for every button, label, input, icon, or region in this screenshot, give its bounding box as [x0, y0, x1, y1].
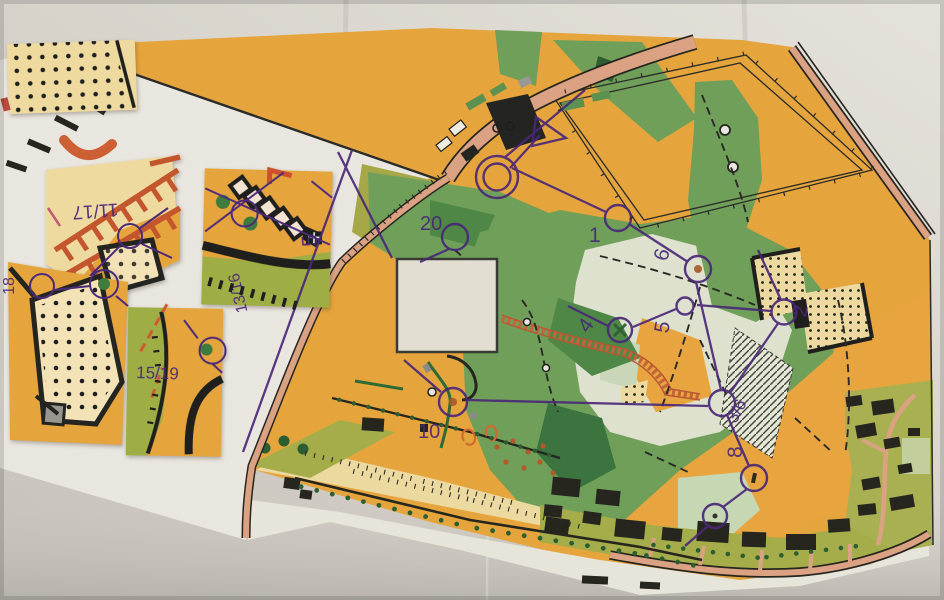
- tree-dot: [809, 549, 814, 554]
- tree-dot: [330, 492, 335, 497]
- tree-dot: [439, 423, 443, 427]
- tick: [692, 62, 693, 66]
- tick: [641, 73, 642, 77]
- wall-tag: [220, 280, 222, 289]
- tree-dot: [361, 499, 366, 504]
- tree-dot: [279, 436, 290, 447]
- blank-label-square: [397, 259, 497, 352]
- tree-dot: [651, 543, 656, 548]
- tree-dot: [779, 553, 784, 558]
- wall-tag: [294, 301, 296, 310]
- tree-dot: [547, 453, 551, 457]
- tick: [590, 84, 591, 88]
- fragment-label-5: 5: [297, 233, 323, 247]
- building: [362, 417, 385, 432]
- tree-dot: [522, 533, 527, 538]
- tree-dot: [352, 401, 356, 405]
- tree-dot: [794, 551, 799, 556]
- tree-dot: [299, 484, 304, 489]
- fragment-18: [8, 262, 128, 445]
- small-circle-symbol: [543, 365, 550, 372]
- tree-dot: [660, 556, 665, 561]
- tree-dot: [298, 444, 309, 455]
- tree-dot: [518, 444, 522, 448]
- tree-dot: [553, 538, 558, 543]
- tree-dot: [475, 432, 479, 436]
- tree-dot: [314, 488, 319, 493]
- tree-dot: [410, 416, 414, 420]
- wall-tag: [230, 283, 232, 292]
- wall-tag: [152, 395, 158, 396]
- tree-dot: [740, 554, 745, 559]
- tree-dot: [617, 548, 622, 553]
- tree-dot: [395, 412, 399, 416]
- wall-tag: [209, 277, 211, 286]
- tick: [667, 68, 668, 72]
- tree-dot: [681, 546, 686, 551]
- wall-tag: [283, 298, 285, 307]
- tree-dot: [392, 507, 397, 512]
- point-feature: [713, 514, 718, 519]
- tree-dot: [601, 546, 606, 551]
- knoll-dot: [449, 398, 457, 406]
- tree-dot: [366, 405, 370, 409]
- tree-dot: [569, 541, 574, 546]
- knoll-dot: [694, 265, 702, 273]
- wall-tag: [262, 292, 264, 301]
- tick: [565, 89, 566, 93]
- tree-dot: [644, 553, 649, 558]
- tree-dot: [424, 419, 428, 423]
- tree-dot: [408, 510, 413, 515]
- wall-tag: [155, 365, 161, 366]
- tree-dot: [474, 526, 479, 531]
- control-label-8: 8: [724, 446, 747, 458]
- tree-dot: [839, 546, 844, 551]
- tree-dot: [538, 536, 543, 541]
- wall-tag: [251, 289, 253, 298]
- tree-dot: [337, 398, 341, 402]
- tree-dot: [454, 522, 459, 527]
- tick: [616, 79, 617, 83]
- fragment-label-11-17: 11/17: [72, 198, 119, 222]
- tree-dot: [764, 555, 769, 560]
- tree-dot: [504, 440, 508, 444]
- tree-dot: [824, 548, 829, 553]
- tree-dot: [675, 560, 680, 565]
- tree-dot: [506, 531, 511, 536]
- tick: [717, 57, 718, 61]
- tick: [743, 52, 744, 56]
- control-label-20: 20: [420, 213, 442, 235]
- tree-dot: [98, 278, 110, 290]
- control-label-1: 1: [589, 224, 601, 247]
- wall-tag: [155, 381, 161, 382]
- tree-dot: [345, 495, 350, 500]
- wall-tag: [152, 337, 158, 338]
- tree-dot: [423, 514, 428, 519]
- tree-dot: [755, 555, 760, 560]
- tree-dot: [490, 528, 495, 533]
- tree-dot: [726, 552, 731, 557]
- knoll-circle: [720, 125, 730, 135]
- control-label-10: 10: [418, 421, 440, 443]
- tree-dot: [711, 550, 716, 555]
- tree-dot: [854, 544, 859, 549]
- wall-tag: [150, 408, 156, 409]
- tree-dot: [377, 503, 382, 508]
- tree-dot: [533, 449, 537, 453]
- tree-dot: [381, 408, 385, 412]
- small-circle-symbol: [524, 319, 531, 326]
- building: [299, 489, 312, 500]
- map-photo: 20 1 6 4 5 2 3/6 8 10 11/17 13/16 5 18 1…: [0, 0, 944, 600]
- tree-dot: [489, 436, 493, 440]
- tree-dot: [454, 426, 458, 430]
- tree-dot: [585, 543, 590, 548]
- tree-dot: [666, 544, 671, 549]
- wall-tag: [241, 286, 243, 295]
- wall-tag: [147, 422, 153, 423]
- tree-dot: [632, 551, 637, 556]
- tree-dot: [439, 518, 444, 523]
- small-circle-symbol: [428, 388, 436, 396]
- tree-dot: [696, 548, 701, 553]
- fragment-sand: [7, 40, 137, 114]
- wall-tag: [273, 295, 275, 304]
- tree-dot: [691, 563, 696, 568]
- wall-tag: [153, 351, 159, 352]
- orienteering-map-photo: 20 1 6 4 5 2 3/6 8 10 11/17 13/16 5 18 1…: [0, 0, 944, 600]
